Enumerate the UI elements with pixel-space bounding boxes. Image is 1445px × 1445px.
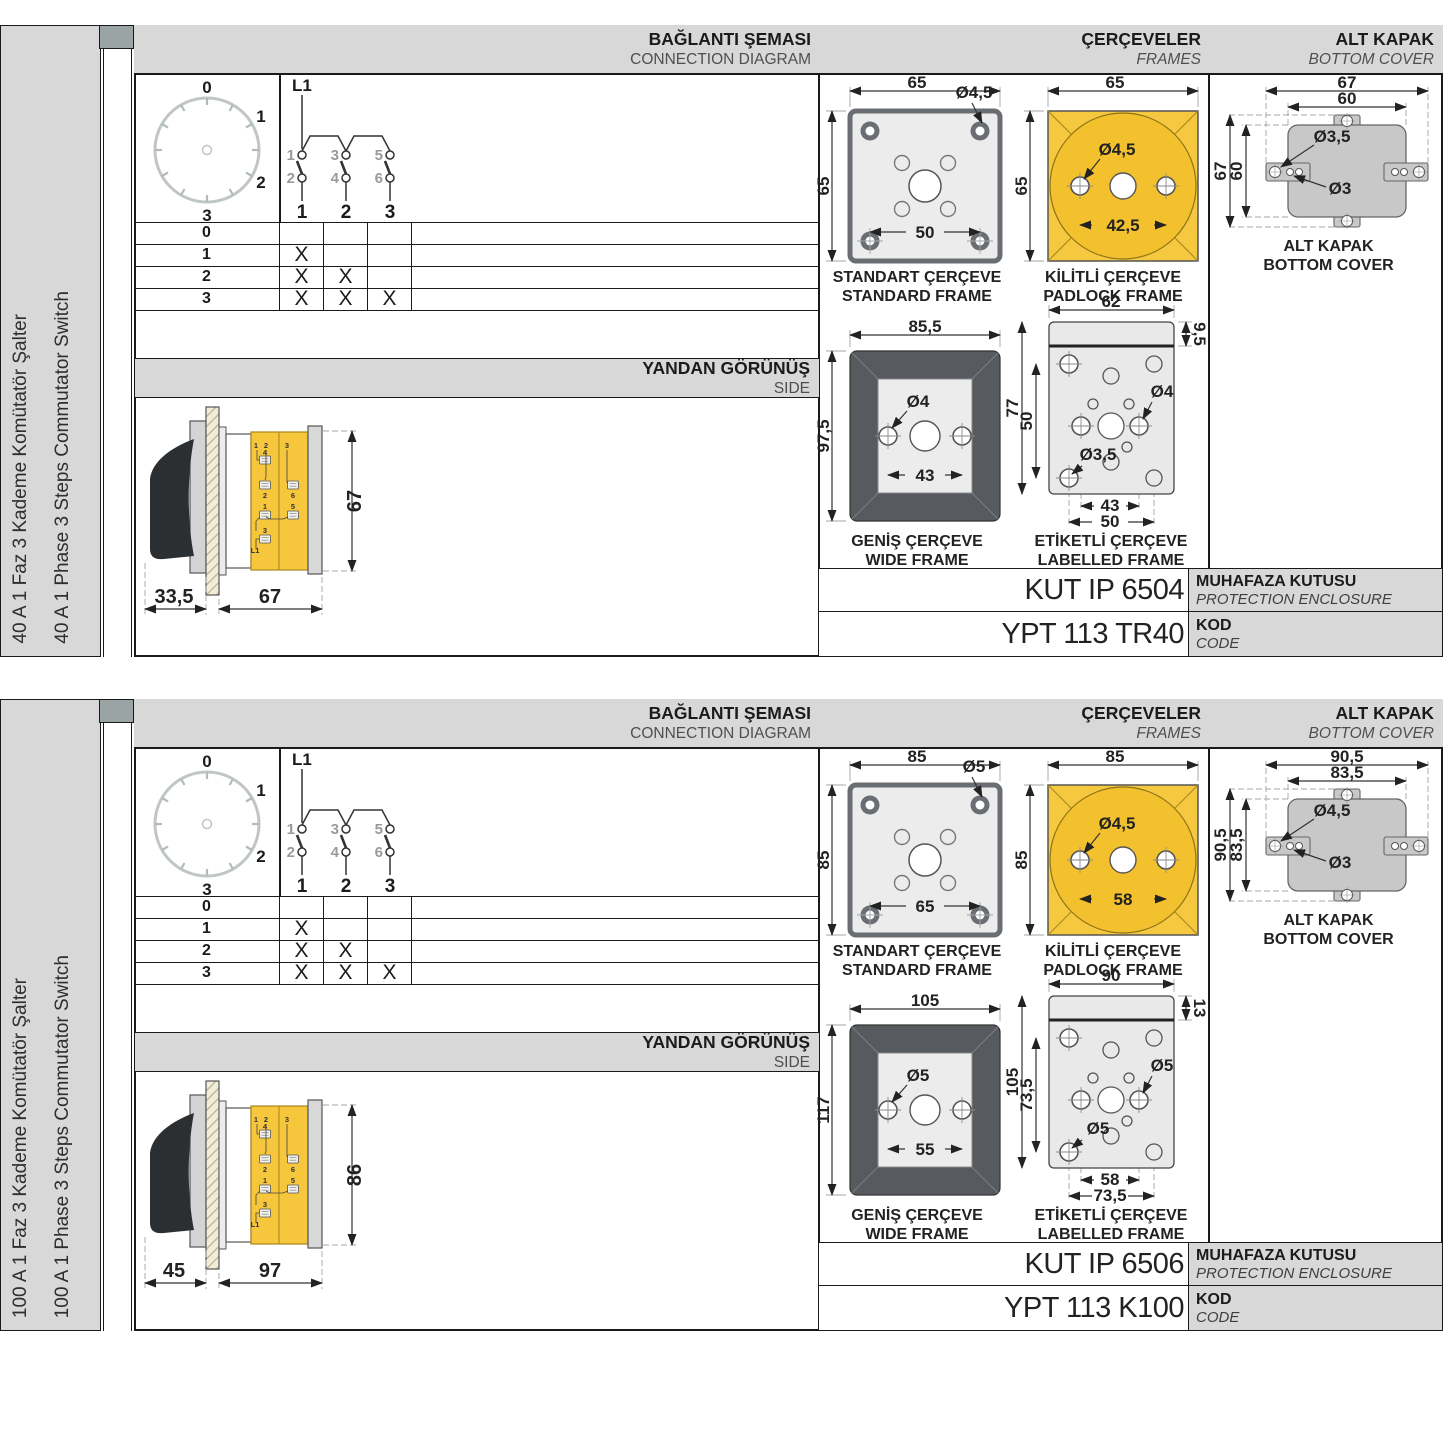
mark-cell: X [324,267,368,288]
row-filler [412,941,818,962]
dim-frame-width: 62 [1102,292,1121,311]
terminal-number-3: 3 [331,147,339,164]
labelled-frame-drawing: 90 13 105 73,5 Ø5 Ø5 58 73,5 [1014,974,1209,1204]
header-connection-diagram: BAĞLANTI ŞEMASI CONNECTION DIAGRAM [134,699,820,749]
code-label-tr: KOD [1196,617,1442,635]
dim-cover-inner-width: 60 [1338,89,1357,108]
row-position: 3 [134,289,280,310]
back-plate [219,427,226,575]
mark-cell [368,223,412,244]
padlock-frame-label-tr: KİLİTLİ ÇERÇEVE [1018,942,1208,961]
wide-frame-label-tr: GENİŞ ÇERÇEVE [820,1206,1014,1225]
row-position: 2 [134,267,280,288]
dim-cover-inner-width: 83,5 [1330,763,1363,782]
back-plate [219,1101,226,1249]
dim-cover-hole-small: Ø3 [1329,179,1352,198]
labelled-frame-drawing: 62 9,5 77 50 Ø4 Ø3,5 43 50 [1014,300,1209,530]
table-row: 1 X [134,919,818,941]
dial-position-2: 2 [256,847,265,866]
enclosure-label-tr: MUHAFAZA KUTUSU [1196,573,1442,591]
wide-frame-drawing: 85,5 Ø4 97,5 43 [822,325,1012,527]
row-position: 1 [134,919,280,940]
side-view-band: YANDAN GÖRÜNÜŞ SIDE [134,1032,820,1072]
dim-frame-width: 85 [1106,747,1125,766]
dim-hole-diameter: Ø4,5 [1099,140,1136,159]
product-code: YPT 113 TR40 [818,611,1190,657]
dim-hole-diameter: Ø4 [907,392,930,411]
dim-body-height: 86 [344,1164,366,1186]
dim-frame-width: 90 [1102,966,1121,985]
shaft-hole [1110,173,1136,199]
row-position: 3 [134,963,280,984]
dim-body-height: 67 [344,490,366,512]
terminal-number-2: 2 [287,844,295,861]
mark-cell [324,245,368,266]
table-row: 3 X X X [134,963,818,985]
cover-tab-right [1384,163,1428,181]
padlock-frame-drawing: 65 Ø4,5 65 42,5 [1020,81,1210,267]
terminal-number-5: 5 [375,821,383,838]
rear-cap [308,426,322,574]
product-title-english: 100 A 1 Phase 3 Steps Commutator Switch [52,955,74,1318]
mark-cell [368,267,412,288]
switch-handle [150,1113,194,1233]
header-frames-en: FRAMES [1136,725,1201,743]
dim-pitch-outer: 50 [1101,512,1120,531]
terminal-number-4: 4 [331,170,340,187]
dim-hole-pitch: 42,5 [1106,216,1139,235]
product-sidebar: 40 A 1 Faz 3 Kademe Komütatör Şalter 40 … [0,25,101,657]
mark-cell [280,223,324,244]
pole-number-3: 3 [385,202,396,223]
shaft-hole [1110,847,1136,873]
dim-strip-height: 9,5 [1190,322,1209,346]
enclosure-code: KUT IP 6506 [818,1242,1190,1287]
schematic-source-label: L1 [292,750,312,769]
schematic-source-label: L1 [292,76,312,95]
terminal-number-6: 6 [375,170,383,187]
dial-position-2: 2 [256,173,265,192]
standard-frame-label-en: STANDARD FRAME [820,961,1014,980]
dim-frame-width: 65 [908,73,927,92]
shaft-hole [910,1095,940,1125]
index-tab [99,25,134,49]
header-frames: ÇERÇEVELER FRAMES [820,25,1210,75]
header-connection-en: CONNECTION DIAGRAM [630,51,811,69]
bottom-cover-drawing: 67 60 67 60 Ø3,5 Ø3 [1214,81,1442,233]
switch-handle [150,439,194,559]
side-terminal-label: L1 [251,1220,260,1229]
product-sidebar: 100 A 1 Faz 3 Kademe Komütatör Şalter 10… [0,699,101,1331]
row-filler [412,963,818,984]
header-bottom-cover: ALT KAPAK BOTTOM COVER [1210,25,1443,75]
mark-cell: X [280,919,324,940]
dim-handle-depth: 45 [163,1260,185,1282]
dim-vertical-pitch: 50 [1017,412,1036,431]
mark-cell: X [280,941,324,962]
side-view-title-en: SIDE [774,380,810,398]
spine-strip [103,699,132,1331]
corner-hole [861,796,880,815]
side-terminal-label: 5 [291,1176,295,1185]
side-terminal-label: 3 [285,441,289,450]
side-terminal-label: 3 [285,1115,289,1124]
dim-hole-right: Ø4 [1151,382,1174,401]
header-cover-en: BOTTOM COVER [1309,51,1434,69]
dim-hole-pitch: 58 [1114,890,1133,909]
header-cover-en: BOTTOM COVER [1309,725,1434,743]
mark-cell: X [280,245,324,266]
header-frames-tr: ÇERÇEVELER [1081,703,1201,724]
row-filler [412,919,818,940]
wide-frame-label: GENİŞ ÇERÇEVE WIDE FRAME [820,1206,1014,1244]
enclosure-code: KUT IP 6504 [818,568,1190,613]
side-terminal-label: 2 [263,1165,267,1174]
mark-cell [368,941,412,962]
bottom-cover-label-tr: ALT KAPAK [1216,237,1441,256]
standard-frame-label: STANDART ÇERÇEVE STANDARD FRAME [820,268,1014,306]
table-row: 1 X [134,245,818,267]
dim-pitch-outer: 73,5 [1093,1186,1126,1205]
mark-cell [368,919,412,940]
mark-cell [324,897,368,918]
table-row: 3 X X X [134,289,818,311]
header-cover-tr: ALT KAPAK [1335,29,1434,50]
side-terminal-label: 1 [254,441,258,450]
switch-body-front [226,1108,251,1242]
dim-frame-height: 117 [814,1096,833,1123]
mark-cell: X [280,267,324,288]
dim-body-depth: 97 [259,1260,281,1282]
mark-cell [324,919,368,940]
mark-cell [280,897,324,918]
wide-frame-label: GENİŞ ÇERÇEVE WIDE FRAME [820,532,1014,570]
contact-schematic: L1 1 3 5 2 4 6 1 2 3 [280,749,818,896]
bottom-cover-label-en: BOTTOM COVER [1216,256,1441,275]
dim-hole-diameter: Ø5 [907,1066,930,1085]
dim-hole-left: Ø3,5 [1080,445,1117,464]
rear-cap [308,1100,322,1248]
product-code-label: KOD CODE [1188,1285,1443,1331]
header-cover-tr: ALT KAPAK [1335,703,1434,724]
dim-cover-inner-height: 60 [1227,162,1246,181]
dim-hole-pitch: 65 [916,897,935,916]
enclosure-code-label: MUHAFAZA KUTUSU PROTECTION ENCLOSURE [1188,568,1443,613]
terminal-number-4: 4 [331,844,340,861]
row-position: 1 [134,245,280,266]
spine-strip [103,25,132,657]
side-terminal-label: 6 [291,1165,295,1174]
terminal-number-3: 3 [331,821,339,838]
pole-number-2: 2 [341,202,352,223]
dim-strip-height: 13 [1190,999,1209,1018]
bottom-cover-label: ALT KAPAK BOTTOM COVER [1216,911,1441,949]
standard-frame-label-en: STANDARD FRAME [820,287,1014,306]
mark-cell: X [368,289,412,310]
contact-schematic: L1 1 3 5 2 4 6 1 2 3 [280,75,818,222]
mark-cell: X [280,289,324,310]
row-filler [412,267,818,288]
product-code-label: KOD CODE [1188,611,1443,657]
enclosure-label-en: PROTECTION ENCLOSURE [1196,1265,1442,1282]
product-code: YPT 113 K100 [818,1285,1190,1331]
dim-vertical-pitch: 73,5 [1017,1078,1036,1111]
pole-number-1: 1 [297,202,308,223]
row-position: 0 [134,223,280,244]
enclosure-code-label: MUHAFAZA KUTUSU PROTECTION ENCLOSURE [1188,1242,1443,1287]
standard-frame-label: STANDART ÇERÇEVE STANDARD FRAME [820,942,1014,980]
switch-body-front [226,434,251,568]
dim-frame-height: 97,5 [814,419,833,452]
side-view-band: YANDAN GÖRÜNÜŞ SIDE [134,358,820,398]
header-connection-tr: BAĞLANTI ŞEMASI [649,703,811,724]
cover-tab-left [1266,163,1310,181]
header-frames-en: FRAMES [1136,51,1201,69]
header-bottom-cover: ALT KAPAK BOTTOM COVER [1210,699,1443,749]
standard-frame-drawing: 85 Ø5 85 65 [822,755,1012,941]
corner-hole [971,122,990,141]
corner-hole [971,796,990,815]
bottom-cover-label-tr: ALT KAPAK [1216,911,1441,930]
product-title-turkish: 100 A 1 Faz 3 Kademe Komütatör Şalter [10,978,32,1318]
corner-hole [861,122,880,141]
dim-frame-height: 65 [1012,177,1031,196]
side-terminal-label: 1 [254,1115,258,1124]
padlock-frame-label-tr: KİLİTLİ ÇERÇEVE [1018,268,1208,287]
dim-frame-height: 85 [814,851,833,870]
enclosure-label-en: PROTECTION ENCLOSURE [1196,591,1442,608]
pole-number-1: 1 [297,876,308,897]
row-filler [412,223,818,244]
shaft-hole [909,170,941,202]
side-terminal-label: 2 [263,491,267,500]
header-connection-tr: BAĞLANTI ŞEMASI [649,29,811,50]
enclosure-label-tr: MUHAFAZA KUTUSU [1196,1247,1442,1265]
product-panel: 40 A 1 Faz 3 Kademe Komütatör Şalter 40 … [0,25,1443,657]
index-tab [99,699,134,723]
dial-face [155,772,259,876]
terminal-number-2: 2 [287,170,295,187]
dim-hole-diameter: Ø4,5 [956,83,993,102]
dim-frame-width: 85 [908,747,927,766]
table-row: 2 X X [134,941,818,963]
switch-dial-diagram: 0 1 2 3 [134,749,280,896]
mark-cell: X [280,963,324,984]
dim-hole-right: Ø5 [1151,1056,1174,1075]
header-connection-en: CONNECTION DIAGRAM [630,725,811,743]
switching-table: 0 1 X 2 X X 3 X X X [134,896,818,985]
labelled-frame-label: ETİKETLİ ÇERÇEVE LABELLED FRAME [1016,1206,1206,1244]
switching-table: 0 1 X 2 X X 3 X X X [134,222,818,311]
standard-frame-label-tr: STANDART ÇERÇEVE [820,942,1014,961]
dim-body-depth: 67 [259,586,281,608]
product-panel: 100 A 1 Faz 3 Kademe Komütatör Şalter 10… [0,699,1443,1331]
dim-handle-depth: 33,5 [155,586,194,608]
row-position: 2 [134,941,280,962]
terminal-number-6: 6 [375,844,383,861]
dial-position-0: 0 [202,78,211,97]
header-connection-diagram: BAĞLANTI ŞEMASI CONNECTION DIAGRAM [134,25,820,75]
dim-cover-hole-small: Ø3 [1329,853,1352,872]
code-label-en: CODE [1196,1309,1442,1326]
bottom-cover-drawing: 90,5 83,5 90,5 83,5 Ø4,5 Ø3 [1214,755,1442,907]
dim-frame-height: 65 [814,177,833,196]
dim-cover-hole-big: Ø3,5 [1314,127,1351,146]
dim-frame-width: 65 [1106,73,1125,92]
dim-frame-width: 105 [911,991,939,1010]
dial-face [155,98,259,202]
dim-hole-pitch: 55 [916,1140,935,1159]
mark-cell: X [324,963,368,984]
mark-cell [324,223,368,244]
row-filler [412,245,818,266]
padlock-frame-drawing: 85 Ø4,5 85 58 [1020,755,1210,941]
side-terminal-label: 1 [263,502,267,511]
terminal-number-1: 1 [287,821,295,838]
side-view-title-en: SIDE [774,1054,810,1072]
pole-number-2: 2 [341,876,352,897]
mark-cell: X [324,289,368,310]
side-view-drawing: 1 2 3 4 2 6 1 5 3 L1 33,5 67 67 [140,403,700,653]
pole-number-3: 3 [385,876,396,897]
dim-cover-hole-big: Ø4,5 [1314,801,1351,820]
side-terminal-label: 5 [291,502,295,511]
standard-frame-label-tr: STANDART ÇERÇEVE [820,268,1014,287]
bottom-cover-label-en: BOTTOM COVER [1216,930,1441,949]
mark-cell [368,245,412,266]
table-row: 2 X X [134,267,818,289]
table-row: 0 [134,897,818,919]
side-terminal-label: 6 [291,491,295,500]
cover-tab-right [1384,837,1428,855]
dim-hole-pitch: 50 [916,223,935,242]
dim-hole-pitch: 43 [916,466,935,485]
shaft-hole [910,421,940,451]
side-terminal-label: 3 [263,1200,267,1209]
side-view-title-tr: YANDAN GÖRÜNÜŞ [642,1032,810,1053]
product-title-english: 40 A 1 Phase 3 Steps Commutator Switch [52,291,74,644]
code-label-en: CODE [1196,635,1442,652]
mark-cell: X [368,963,412,984]
bottom-cover-label: ALT KAPAK BOTTOM COVER [1216,237,1441,275]
mark-cell: X [324,941,368,962]
cover-tab-left [1266,837,1310,855]
side-terminal-label: 1 [263,1176,267,1185]
labelled-frame-label-tr: ETİKETLİ ÇERÇEVE [1016,1206,1206,1225]
dial-position-1: 1 [256,781,265,800]
dim-frame-height: 85 [1012,851,1031,870]
side-view-title-tr: YANDAN GÖRÜNÜŞ [642,358,810,379]
terminal-number-5: 5 [375,147,383,164]
dim-cover-inner-height: 83,5 [1227,828,1246,861]
table-row: 0 [134,223,818,245]
dial-position-0: 0 [202,752,211,771]
labelled-frame-label: ETİKETLİ ÇERÇEVE LABELLED FRAME [1016,532,1206,570]
dim-frame-width: 85,5 [908,317,941,336]
code-label-tr: KOD [1196,1291,1442,1309]
dim-hole-diameter: Ø5 [963,757,986,776]
wide-frame-drawing: 105 Ø5 117 55 [822,999,1012,1201]
dim-hole-left: Ø5 [1087,1119,1110,1138]
row-filler [412,289,818,310]
header-frames: ÇERÇEVELER FRAMES [820,699,1210,749]
shaft-hole [909,844,941,876]
standard-frame-drawing: 65 Ø4,5 65 50 [822,81,1012,267]
row-position: 0 [134,897,280,918]
mounting-panel [206,407,219,595]
product-title-turkish: 40 A 1 Faz 3 Kademe Komütatör Şalter [10,314,32,644]
mounting-panel [206,1081,219,1269]
side-terminal-label: L1 [251,546,260,555]
side-view-drawing: 1 2 3 4 2 6 1 5 3 L1 45 97 86 [140,1077,700,1327]
wide-frame-label-tr: GENİŞ ÇERÇEVE [820,532,1014,551]
labelled-frame-label-tr: ETİKETLİ ÇERÇEVE [1016,532,1206,551]
switch-dial-diagram: 0 1 2 3 [134,75,280,222]
header-frames-tr: ÇERÇEVELER [1081,29,1201,50]
dial-position-1: 1 [256,107,265,126]
row-filler [412,897,818,918]
dim-hole-diameter: Ø4,5 [1099,814,1136,833]
terminal-number-1: 1 [287,147,295,164]
mark-cell [368,897,412,918]
side-terminal-label: 3 [263,526,267,535]
